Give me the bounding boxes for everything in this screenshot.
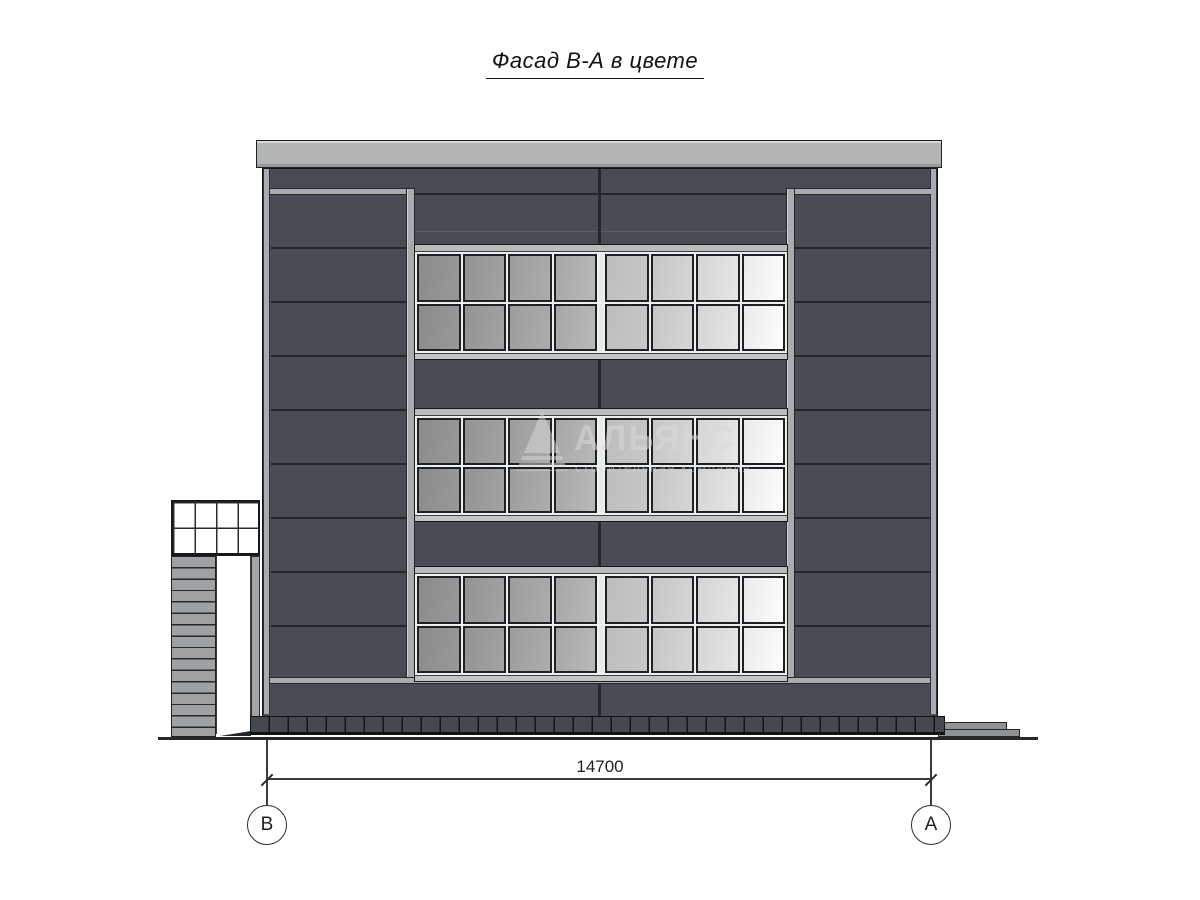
window-pane xyxy=(417,418,461,465)
window-pane xyxy=(605,304,649,352)
window-pane xyxy=(605,418,649,465)
window-pane xyxy=(651,254,695,302)
window-pane xyxy=(554,576,598,624)
window-pane xyxy=(463,626,507,674)
dimension-line xyxy=(266,778,932,780)
window-pane xyxy=(696,626,740,674)
window-center-mullion xyxy=(599,418,603,465)
window-pane xyxy=(742,254,786,302)
ground-line xyxy=(158,737,1038,740)
window-pane xyxy=(508,254,552,302)
window-pane-row xyxy=(417,467,785,514)
window-band-1 xyxy=(414,244,788,360)
window-pane xyxy=(554,467,598,514)
window-pane-row xyxy=(417,254,785,302)
window-pane-row xyxy=(417,304,785,352)
window-pane xyxy=(651,418,695,465)
window-pane xyxy=(508,418,552,465)
window-pane-row xyxy=(417,626,785,674)
window-glazing-grid xyxy=(415,252,787,353)
window-band-top-frame xyxy=(415,245,787,252)
window-pane xyxy=(651,304,695,352)
window-center-mullion xyxy=(599,626,603,674)
axis-marker-b: В xyxy=(247,805,287,845)
window-pane-row xyxy=(417,576,785,624)
window-glazing-grid xyxy=(415,416,787,515)
drawing-sheet: Фасад В-А в цвете xyxy=(0,0,1200,900)
window-pane xyxy=(742,418,786,465)
window-band-bottom-frame xyxy=(415,675,787,681)
window-band-3 xyxy=(414,566,788,682)
window-pane xyxy=(696,418,740,465)
window-pane xyxy=(742,304,786,352)
window-pane xyxy=(463,418,507,465)
left-side-panel xyxy=(271,195,406,677)
window-pane xyxy=(605,626,649,674)
extension-line-b xyxy=(266,740,268,805)
entrance-canopy-glazing xyxy=(171,500,260,555)
window-band-top-frame xyxy=(415,409,787,416)
window-pane xyxy=(508,576,552,624)
window-pane xyxy=(508,467,552,514)
window-center-mullion xyxy=(599,467,603,514)
window-pane xyxy=(742,626,786,674)
window-pane xyxy=(463,304,507,352)
window-pane xyxy=(554,626,598,674)
window-pane xyxy=(508,626,552,674)
window-pane xyxy=(696,254,740,302)
left-corner-trim xyxy=(263,169,270,714)
window-pane xyxy=(651,576,695,624)
right-corner-trim xyxy=(930,169,937,714)
window-pane xyxy=(742,576,786,624)
window-pane-row xyxy=(417,418,785,465)
window-pane xyxy=(605,467,649,514)
window-pane xyxy=(417,304,461,352)
window-pane xyxy=(463,254,507,302)
window-pane xyxy=(463,576,507,624)
drawing-title: Фасад В-А в цвете xyxy=(0,48,1190,79)
window-center-mullion xyxy=(599,254,603,302)
window-pane xyxy=(417,254,461,302)
axis-label-b: В xyxy=(261,814,274,836)
left-top-trim xyxy=(270,188,407,195)
window-pane xyxy=(554,418,598,465)
window-band-bottom-frame xyxy=(415,515,787,521)
window-pane xyxy=(696,467,740,514)
window-band-top-frame xyxy=(415,567,787,574)
window-pane xyxy=(605,254,649,302)
parapet-roof-band xyxy=(256,140,942,168)
extension-line-a xyxy=(930,740,932,805)
window-pane xyxy=(742,467,786,514)
window-pane xyxy=(463,467,507,514)
exterior-staircase xyxy=(171,556,216,737)
window-center-mullion xyxy=(599,304,603,352)
window-glazing-grid xyxy=(415,574,787,675)
window-band-bottom-frame xyxy=(415,353,787,359)
window-pane xyxy=(417,467,461,514)
axis-marker-a: А xyxy=(911,805,951,845)
window-pane xyxy=(696,304,740,352)
window-pane xyxy=(696,576,740,624)
window-pane xyxy=(417,576,461,624)
dimension-value: 14700 xyxy=(450,757,750,777)
axis-label-a: А xyxy=(925,814,938,836)
entrance-door-opening xyxy=(216,556,251,734)
window-pane xyxy=(554,254,598,302)
window-band-2 xyxy=(414,408,788,522)
plinth-tile-band xyxy=(250,716,945,735)
window-pane xyxy=(417,626,461,674)
right-top-trim xyxy=(794,188,931,195)
window-pane xyxy=(651,467,695,514)
building-facade xyxy=(262,168,938,717)
window-pane xyxy=(508,304,552,352)
window-pane xyxy=(554,304,598,352)
window-pane xyxy=(605,576,649,624)
right-side-panel xyxy=(795,195,930,677)
drawing-title-text: Фасад В-А в цвете xyxy=(486,48,704,79)
annex-corner-trim xyxy=(251,556,260,717)
window-pane xyxy=(651,626,695,674)
window-center-mullion xyxy=(599,576,603,624)
